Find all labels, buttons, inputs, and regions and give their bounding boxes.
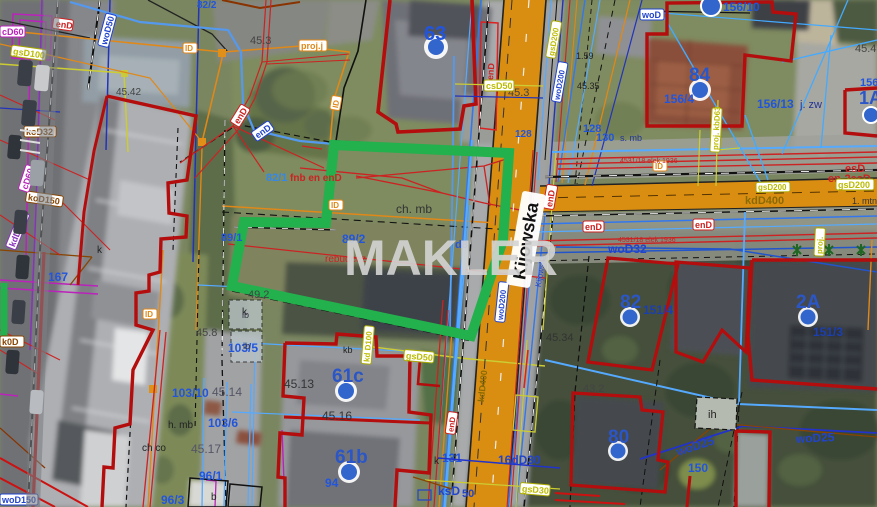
svg-text:k0D: k0D: [2, 337, 19, 347]
svg-text:156/13: 156/13: [757, 97, 794, 111]
svg-text:enD: enD: [585, 222, 603, 232]
svg-text:kdD400: kdD400: [745, 195, 784, 207]
svg-text:130: 130: [596, 132, 614, 144]
svg-text:woD32: woD32: [607, 242, 647, 256]
svg-text:84: 84: [689, 65, 711, 86]
svg-text:ih: ih: [708, 409, 717, 421]
svg-text:ib: ib: [243, 341, 250, 351]
svg-text:ib: ib: [242, 310, 249, 320]
svg-text:ch. mb: ch. mb: [396, 202, 432, 216]
svg-text:63: 63: [424, 23, 446, 45]
svg-text:h. mb: h. mb: [168, 420, 193, 431]
svg-text:gsD200: gsD200: [838, 180, 870, 190]
svg-text:16dD30: 16dD30: [498, 453, 541, 467]
svg-text:45.14: 45.14: [212, 385, 242, 399]
svg-text:kb: kb: [343, 345, 353, 355]
svg-text:82/1: 82/1: [266, 172, 287, 184]
svg-text:proj.j: proj.j: [301, 41, 323, 51]
svg-text:45.35: 45.35: [577, 81, 600, 91]
svg-text:80: 80: [608, 427, 629, 448]
svg-text:96/1: 96/1: [199, 469, 223, 483]
svg-text:enD: enD: [695, 220, 713, 230]
svg-text:156/10: 156/10: [723, 0, 760, 14]
svg-text:128: 128: [515, 129, 532, 140]
svg-text:proj.: proj.: [815, 236, 825, 254]
svg-text:61b: 61b: [335, 447, 368, 468]
svg-text:woD: woD: [641, 10, 661, 20]
svg-text:45.17: 45.17: [191, 442, 221, 456]
svg-text:94: 94: [325, 476, 339, 490]
svg-text:cD60: cD60: [2, 27, 24, 37]
svg-text:j. zw: j. zw: [799, 99, 822, 111]
svg-text:ID: ID: [185, 44, 193, 53]
svg-text:89/1: 89/1: [221, 232, 242, 244]
svg-text:gsD200: gsD200: [758, 183, 787, 192]
svg-text:45.8: 45.8: [196, 327, 217, 339]
svg-text:1A: 1A: [859, 88, 877, 108]
svg-text:enD: enD: [485, 62, 496, 80]
svg-text:2A: 2A: [796, 292, 821, 313]
svg-text:82/2: 82/2: [197, 0, 217, 11]
svg-text:151/4: 151/4: [643, 303, 673, 317]
svg-text:167: 167: [48, 270, 68, 284]
svg-text:ID: ID: [331, 201, 339, 210]
svg-text:50: 50: [462, 488, 474, 500]
svg-text:45.4: 45.4: [855, 43, 876, 55]
svg-text:151/3: 151/3: [813, 325, 843, 339]
svg-text:45.3: 45.3: [250, 35, 271, 47]
svg-text:ch co: ch co: [142, 443, 166, 454]
svg-text:ID: ID: [145, 310, 153, 319]
svg-text:s. mb: s. mb: [620, 133, 642, 143]
svg-text:96/3: 96/3: [161, 493, 185, 507]
svg-text:103/10: 103/10: [172, 386, 209, 400]
svg-text:1. mtn: 1. mtn: [852, 196, 877, 206]
svg-text:82: 82: [620, 292, 641, 313]
svg-text:103/6: 103/6: [208, 416, 238, 430]
svg-text:fnb en enD: fnb en enD: [290, 173, 342, 184]
svg-text:45.42: 45.42: [116, 87, 141, 98]
svg-text:csD50: csD50: [486, 81, 513, 91]
svg-text:1.59: 1.59: [576, 51, 594, 61]
svg-text:49.2: 49.2: [248, 289, 269, 301]
svg-text:MAKLER: MAKLER: [344, 230, 558, 286]
svg-text:45.34: 45.34: [546, 332, 574, 344]
svg-text:43.2: 43.2: [583, 383, 604, 395]
svg-text:4531/18 elek 1936: 4531/18 elek 1936: [618, 237, 676, 244]
svg-text:150: 150: [688, 461, 708, 475]
svg-text:156/4: 156/4: [664, 92, 694, 106]
svg-text:ksD: ksD: [438, 484, 460, 498]
svg-text:4531/18 elek 1936: 4531/18 elek 1936: [620, 158, 678, 165]
svg-text:woD25: woD25: [794, 430, 835, 446]
svg-text:45.16: 45.16: [322, 409, 352, 423]
svg-text:45.13: 45.13: [284, 377, 314, 391]
svg-text:b: b: [211, 492, 217, 503]
svg-text:61c: 61c: [332, 366, 364, 387]
